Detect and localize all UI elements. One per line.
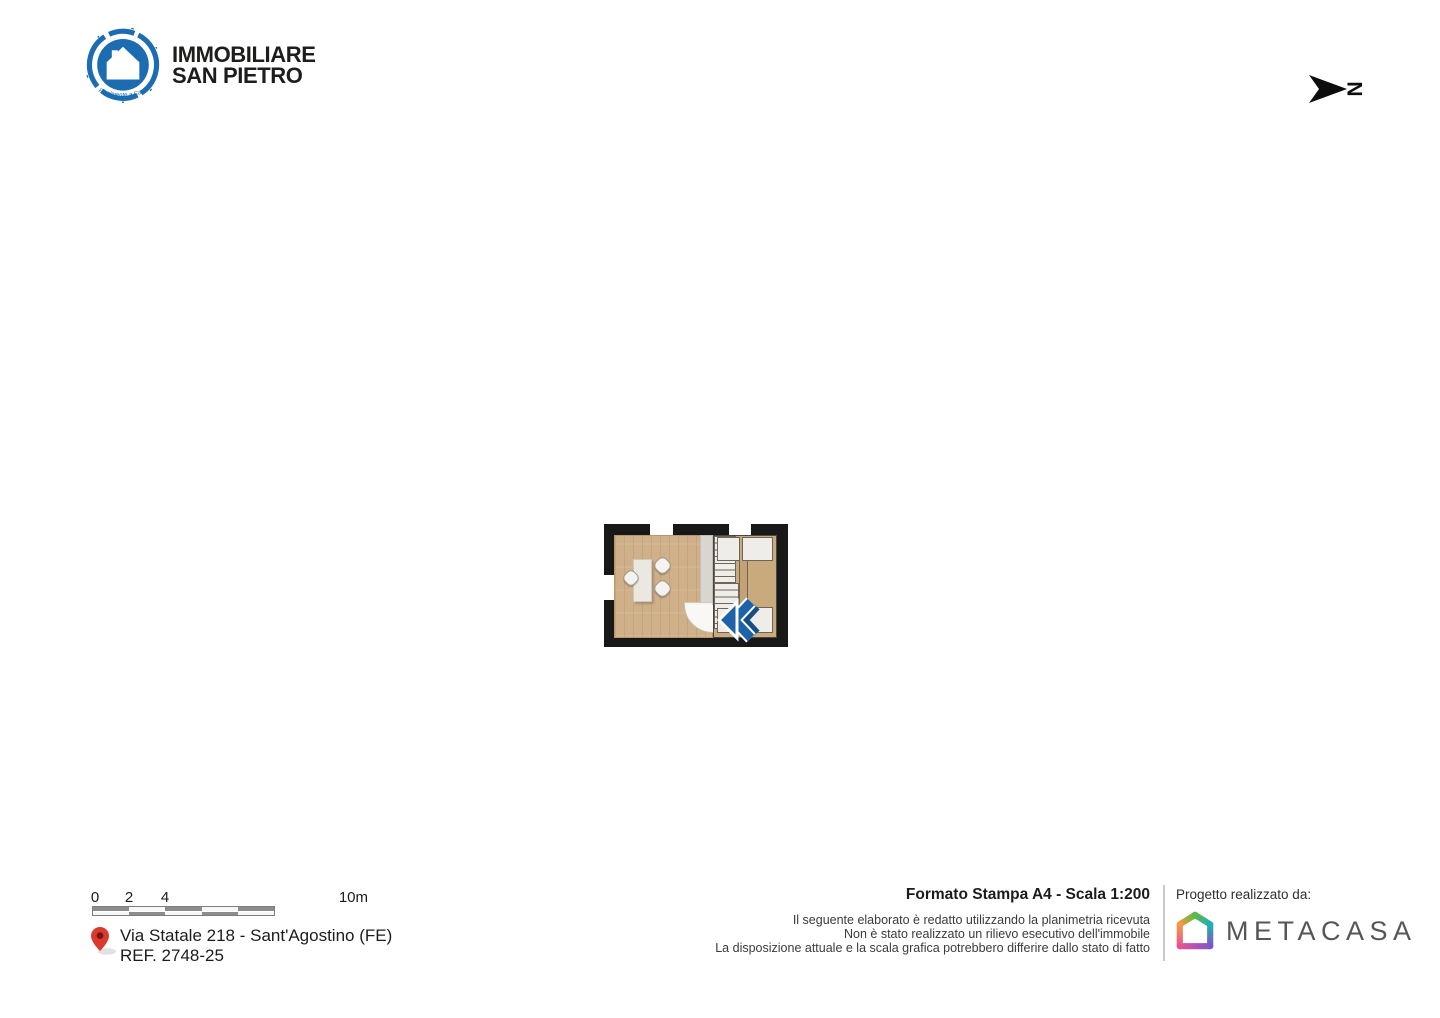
map-pin-icon	[90, 926, 122, 956]
scale-bar-labels: 0 2 4 10m	[92, 889, 302, 906]
agency-logo: Finalmente a Casa IMMOBILIARE SAN PIETRO	[80, 24, 315, 116]
stair-direction-icon	[716, 597, 760, 643]
floor-plan	[604, 524, 788, 647]
scale-bar-graphic	[92, 906, 275, 916]
disclaimer-line: La disposizione attuale e la scala grafi…	[700, 942, 1150, 956]
credits: Progetto realizzato da:	[1176, 887, 1417, 951]
stair-landing-top-left	[717, 537, 740, 561]
scale-tick-label: 10m	[339, 889, 368, 906]
agency-name-line1: IMMOBILIARE	[172, 44, 315, 65]
disclaimer-line: Il seguente elaborato è redatto utilizza…	[700, 914, 1150, 928]
print-format-title: Formato Stampa A4 - Scala 1:200	[700, 886, 1150, 904]
window-opening	[604, 575, 614, 600]
window-opening	[729, 524, 751, 535]
partition-wall	[700, 535, 713, 607]
reference-number: REF. 2748-25	[120, 946, 392, 966]
credits-label: Progetto realizzato da:	[1176, 887, 1417, 902]
metacasa-wordmark: METACASA	[1226, 916, 1417, 947]
location-text: Via Statale 218 - Sant'Agostino (FE) REF…	[120, 926, 392, 966]
plan-interior	[614, 535, 778, 638]
stair-landing-top-right	[742, 537, 773, 561]
north-arrow-icon: N	[1306, 72, 1364, 110]
scale-tick-label: 0	[91, 889, 99, 906]
metacasa-house-icon	[1176, 911, 1214, 951]
footer-divider	[1163, 885, 1165, 961]
scale-bar: 0 2 4 10m	[92, 889, 302, 916]
floor-plan-page: Finalmente a Casa IMMOBILIARE SAN PIETRO…	[0, 0, 1440, 1018]
agency-badge-icon: Finalmente a Casa	[80, 24, 166, 116]
print-info: Formato Stampa A4 - Scala 1:200 Il segue…	[700, 886, 1150, 955]
metacasa-logo: METACASA	[1176, 911, 1417, 951]
scale-tick-label: 4	[161, 889, 169, 906]
disclaimer-line: Non è stato realizzato un rilievo esecut…	[700, 928, 1150, 942]
window-opening	[650, 524, 673, 535]
agency-name: IMMOBILIARE SAN PIETRO	[172, 44, 315, 86]
scale-tick-label: 2	[125, 889, 133, 906]
compass-north-label: N	[1343, 81, 1365, 96]
address: Via Statale 218 - Sant'Agostino (FE)	[120, 926, 392, 946]
agency-name-line2: SAN PIETRO	[172, 65, 315, 86]
property-location: Via Statale 218 - Sant'Agostino (FE) REF…	[90, 926, 392, 966]
